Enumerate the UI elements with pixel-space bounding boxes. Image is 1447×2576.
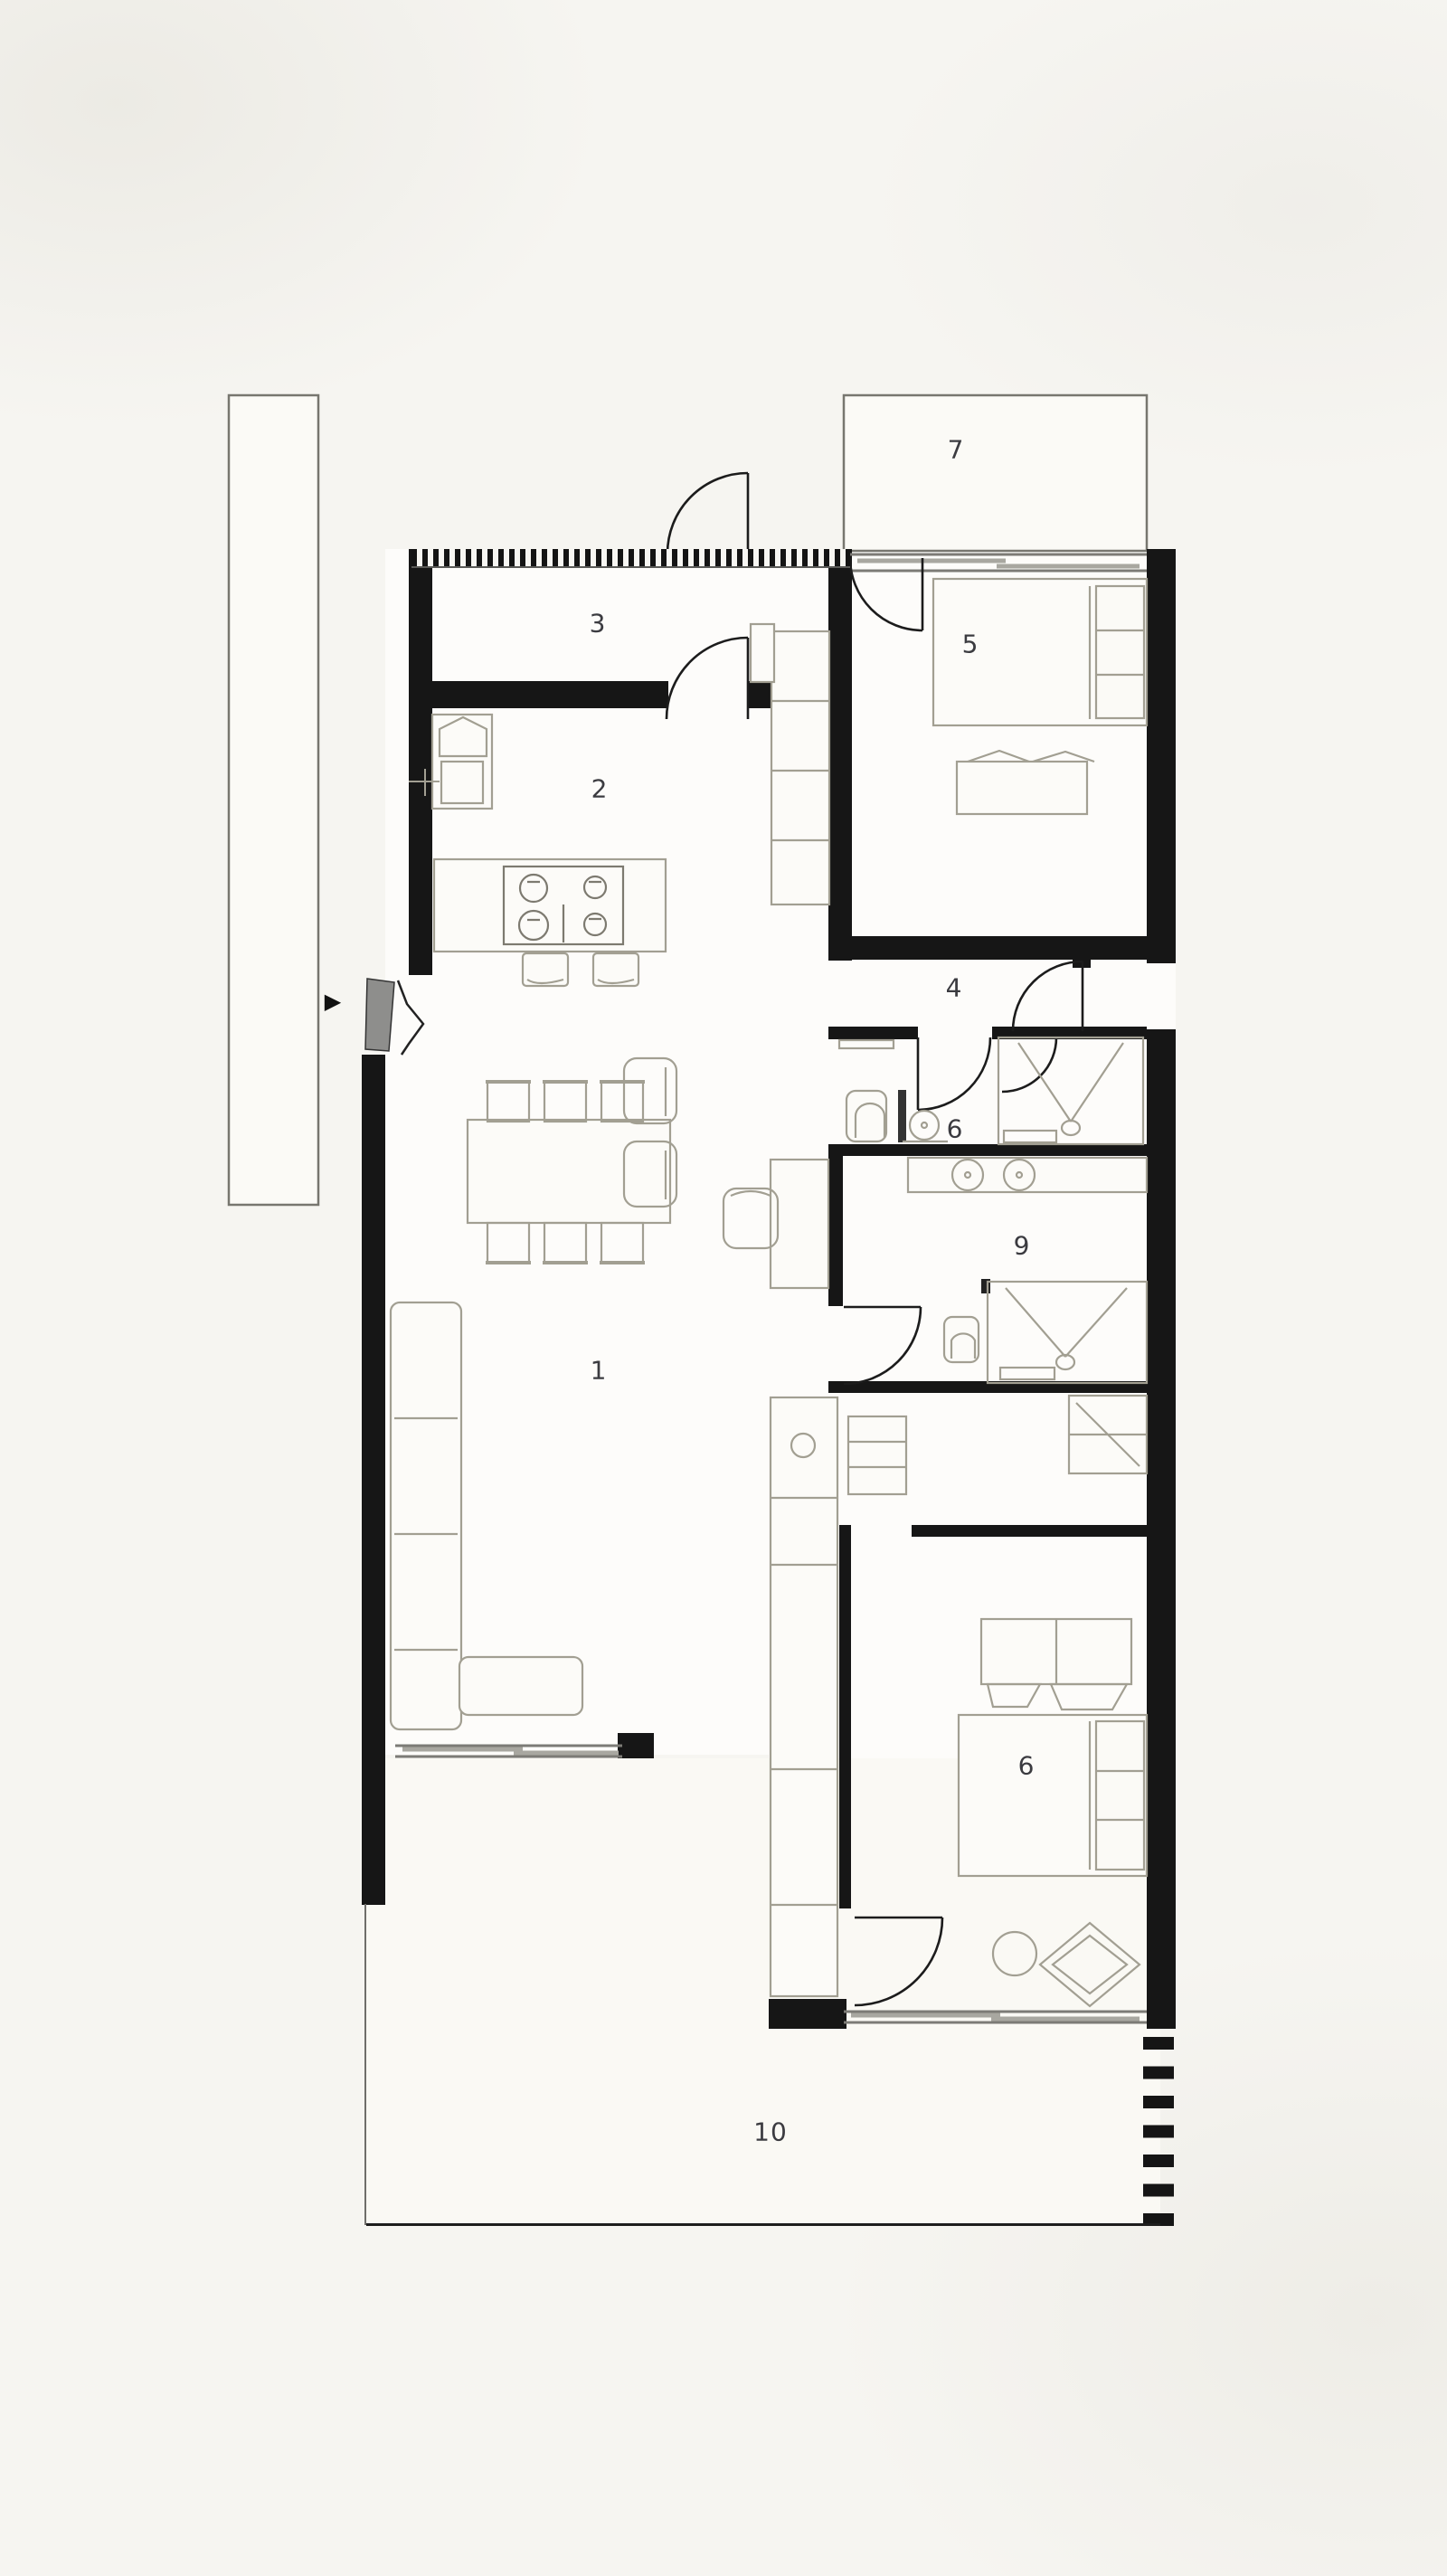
ensuite-toilet (944, 1317, 979, 1362)
kitchen-island (434, 859, 666, 952)
wall-bedroom5-south (850, 936, 1147, 960)
towel-rail (839, 1040, 894, 1048)
wall-wc-partition (898, 1090, 906, 1142)
room-label-hallway: 4 (946, 973, 963, 1003)
room-label-bath-ensuite: 9 (1014, 1231, 1031, 1261)
wall-bedroom6-sw-corner (769, 1999, 846, 2029)
entry-closet (751, 624, 774, 682)
room-label-bathroom: 6 (947, 1114, 964, 1144)
wall-bedroom5-west (828, 549, 852, 961)
dressing-shelves (848, 1416, 906, 1494)
desk (771, 1160, 828, 1288)
entry-arrow-icon: ▶ (325, 989, 341, 1014)
wall-east-upper (1147, 549, 1176, 963)
vanity-double-sink (908, 1158, 1147, 1192)
wall-bath-north-west (828, 1027, 918, 1039)
wall-bath-vanity-divider (828, 1144, 1147, 1156)
terrace-west-edge (364, 1904, 366, 2225)
wall-ensuite-west (828, 1156, 843, 1306)
wall-cabinet-strip (771, 1397, 837, 1996)
wall-living-south-stub (618, 1733, 654, 1758)
bed-south (959, 1715, 1147, 1876)
room-label-bedroom-south: 6 (1018, 1751, 1036, 1781)
wall-east-main (1147, 1029, 1176, 2029)
wall-bedroom6-north (912, 1525, 1147, 1537)
wall-west-upper (409, 549, 432, 975)
paper-sheet: ▶ 1 2 3 4 5 6 7 9 6 10 (0, 0, 1447, 2576)
room-label-entry-hall: 3 (590, 609, 607, 639)
room-label-kitchen: 2 (591, 774, 609, 804)
wall-west-lower (362, 1055, 385, 1905)
floor-plan-drawing (0, 0, 1447, 2576)
corridor-closet (771, 631, 829, 904)
window-hatch-band (411, 549, 850, 568)
boundary-dash-strip (1143, 2037, 1174, 2229)
door-front-entry (667, 473, 748, 554)
wall-entry-south-west (409, 681, 668, 708)
terrace-south-edge (366, 2223, 1160, 2226)
dressing-wardrobe (1069, 1396, 1147, 1473)
room-label-bedroom-main: 5 (962, 630, 979, 659)
room-label-living: 1 (591, 1356, 608, 1386)
toilet (846, 1091, 886, 1141)
wall-bedroom6-west (839, 1525, 851, 1908)
room-label-terrace-south: 10 (753, 2117, 788, 2147)
room-label-terrace-north: 7 (948, 435, 965, 465)
